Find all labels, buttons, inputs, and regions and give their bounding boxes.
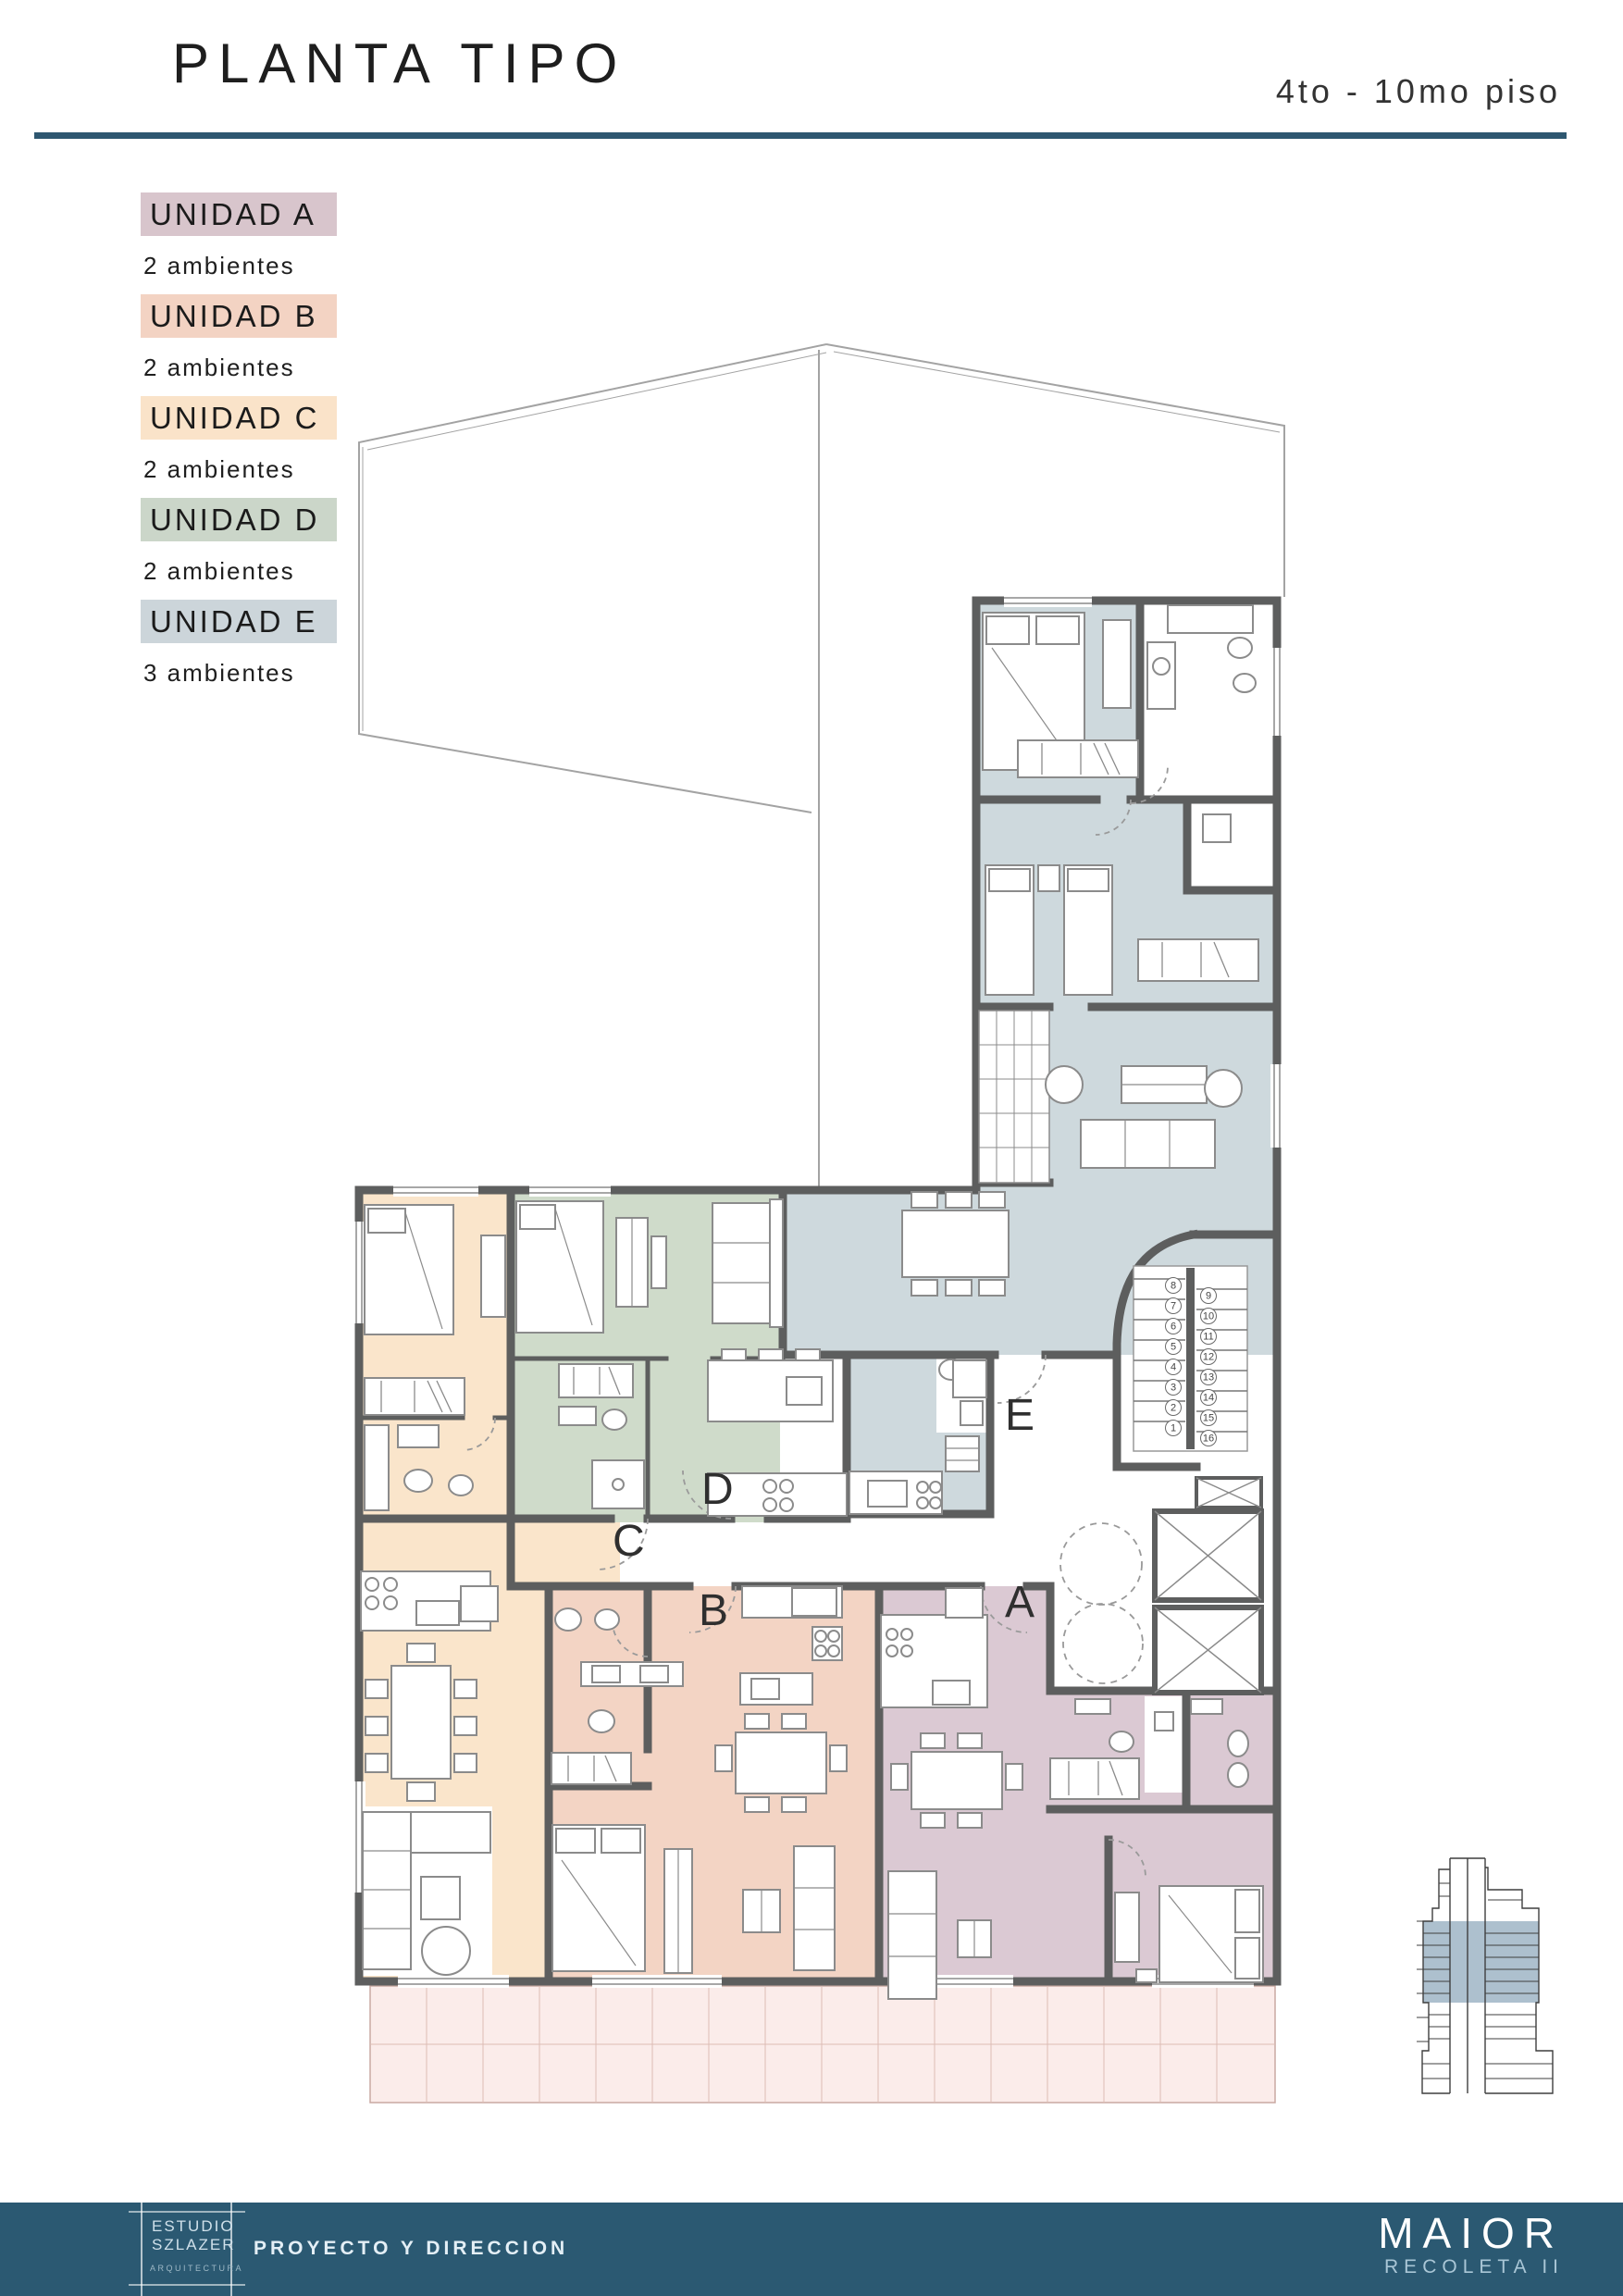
fridge-icon xyxy=(461,1586,498,1621)
sink-icon xyxy=(559,1407,596,1425)
sofa-icon xyxy=(1081,1120,1215,1168)
svg-text:14: 14 xyxy=(1203,1393,1214,1404)
dining-table-icon xyxy=(736,1732,826,1793)
wardrobe-icon xyxy=(1050,1758,1139,1799)
balcony-terrace xyxy=(370,1986,1275,2103)
unit-e-laundry-area xyxy=(1187,803,1277,890)
fridge-icon xyxy=(792,1588,836,1616)
project-role-label: PROYECTO Y DIRECCION xyxy=(254,2238,568,2260)
svg-text:6: 6 xyxy=(1171,1322,1176,1333)
closet-icon xyxy=(1115,1893,1139,1962)
studio-logo-line1: ESTUDIO xyxy=(152,2217,235,2236)
nightstand-icon xyxy=(1136,1969,1157,1982)
floor-plan-drawing: 12345678910111213141516 xyxy=(0,0,1623,2296)
unit-c-entry-region xyxy=(507,1522,620,1582)
sofa-icon xyxy=(363,1812,411,1969)
pouf-icon xyxy=(422,1927,470,1975)
side-table-icon xyxy=(1046,1066,1083,1103)
brand-subtitle: RECOLETA II xyxy=(1384,2256,1564,2278)
wardrobe-icon xyxy=(1138,939,1258,981)
unit-a-laundry-area xyxy=(1145,1696,1183,1793)
toilet-icon xyxy=(1228,638,1252,658)
staircase: 12345678910111213141516 xyxy=(1134,1266,1247,1451)
svg-text:3: 3 xyxy=(1171,1383,1176,1394)
svg-text:11: 11 xyxy=(1203,1332,1213,1343)
wardrobe-icon xyxy=(559,1364,633,1397)
sofa-icon xyxy=(712,1203,770,1323)
brand-name: MAIOR xyxy=(1378,2208,1564,2258)
fridge-icon xyxy=(953,1360,986,1397)
washer-icon xyxy=(1203,814,1231,842)
nightstand-icon xyxy=(1038,865,1059,891)
toilet-icon xyxy=(404,1470,432,1492)
svg-text:1: 1 xyxy=(1171,1423,1176,1434)
svg-text:5: 5 xyxy=(1171,1342,1176,1353)
svg-text:7: 7 xyxy=(1171,1301,1176,1312)
sink-icon xyxy=(751,1679,779,1699)
toilet-icon xyxy=(1228,1731,1248,1756)
vanity-icon xyxy=(1191,1699,1222,1714)
svg-text:2: 2 xyxy=(1171,1403,1176,1414)
svg-text:16: 16 xyxy=(1203,1433,1214,1445)
sink-icon xyxy=(960,1401,983,1425)
unit-e-label: E xyxy=(1005,1391,1035,1440)
closet-icon xyxy=(1103,620,1131,708)
fridge-icon xyxy=(946,1588,983,1618)
elevator-shafts xyxy=(1155,1478,1261,1693)
svg-text:8: 8 xyxy=(1171,1281,1176,1292)
closet-icon xyxy=(481,1235,505,1317)
sink-icon xyxy=(398,1425,439,1447)
logo-frame-line xyxy=(141,2193,142,2296)
svg-text:10: 10 xyxy=(1203,1311,1214,1322)
logo-frame-line xyxy=(129,2284,245,2286)
svg-text:12: 12 xyxy=(1203,1352,1214,1363)
floor-plan-sheet: PLANTA TIPO 4to - 10mo piso UNIDAD A 2 a… xyxy=(0,0,1623,2296)
dining-table-icon xyxy=(391,1666,451,1779)
bidet-icon xyxy=(595,1609,619,1630)
svg-text:15: 15 xyxy=(1203,1413,1214,1424)
bidet-icon xyxy=(449,1475,473,1496)
tv-unit-icon xyxy=(651,1236,666,1288)
unit-d-label: D xyxy=(701,1465,734,1514)
svg-text:4: 4 xyxy=(1171,1362,1176,1373)
bidet-icon xyxy=(1228,1763,1248,1787)
laundry-sink-icon xyxy=(1155,1712,1173,1731)
sink-icon xyxy=(933,1681,970,1705)
building-elevation-icon xyxy=(1417,1858,1553,2093)
unit-a-label: A xyxy=(1005,1578,1035,1627)
wardrobe-icon xyxy=(551,1753,631,1784)
svg-text:9: 9 xyxy=(1206,1291,1211,1302)
studio-logo-sub: ARQUITECTURA xyxy=(150,2264,243,2273)
studio-logo-line2: SZLAZER xyxy=(152,2236,236,2254)
patio-circles xyxy=(1060,1523,1143,1683)
dining-table-icon xyxy=(902,1210,1009,1277)
sink-icon xyxy=(868,1481,907,1507)
vanity-icon xyxy=(1075,1699,1110,1714)
unit-b-label: B xyxy=(699,1586,728,1635)
toilet-icon xyxy=(555,1608,581,1631)
dining-table-icon xyxy=(911,1752,1002,1809)
svg-text:13: 13 xyxy=(1203,1372,1214,1384)
sofa-icon xyxy=(888,1871,936,1999)
sofa-icon xyxy=(794,1846,835,1970)
sink-icon xyxy=(787,1377,822,1405)
bath-counter-icon xyxy=(365,1425,389,1510)
toilet-icon xyxy=(602,1409,626,1430)
side-table-icon xyxy=(421,1877,460,1919)
shelf-icon xyxy=(946,1436,979,1471)
toilet-icon xyxy=(588,1710,614,1732)
side-table-icon xyxy=(1205,1070,1242,1107)
bathtub-icon xyxy=(1168,605,1253,633)
toilet-icon xyxy=(1109,1731,1134,1752)
unit-c-label: C xyxy=(613,1517,645,1566)
wardrobe-icon xyxy=(1018,740,1138,777)
bidet-icon xyxy=(1233,674,1256,692)
logo-frame-line xyxy=(129,2211,245,2213)
sink-icon xyxy=(416,1601,459,1625)
